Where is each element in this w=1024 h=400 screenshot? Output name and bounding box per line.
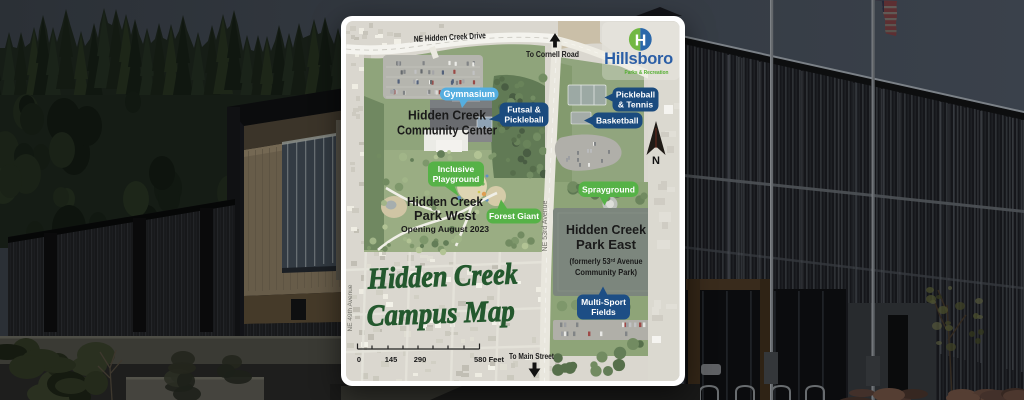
svg-text:580 Feet: 580 Feet (474, 355, 505, 364)
svg-text:NE 49th Avenue: NE 49th Avenue (347, 284, 354, 331)
svg-text:290: 290 (414, 355, 427, 364)
svg-text:(formerly 53rd Avenue: (formerly 53rd Avenue (570, 256, 643, 266)
svg-text:Fields: Fields (591, 307, 616, 317)
svg-text:Hillsboro: Hillsboro (604, 50, 673, 68)
svg-text:Park East: Park East (576, 238, 637, 252)
svg-text:Pickleball: Pickleball (616, 89, 655, 99)
svg-text:Campus Map: Campus Map (366, 294, 515, 332)
svg-text:N: N (652, 155, 660, 167)
svg-text:Park West: Park West (414, 209, 477, 223)
svg-text:Hidden Creek: Hidden Creek (407, 195, 483, 209)
svg-text:To Cornell Road: To Cornell Road (526, 50, 579, 59)
svg-text:Forest Giant: Forest Giant (489, 211, 539, 221)
svg-text:0: 0 (357, 355, 361, 364)
svg-text:Community Center: Community Center (397, 123, 497, 138)
svg-text:Hidden Creek: Hidden Creek (366, 257, 518, 295)
svg-text:To Main Street: To Main Street (509, 352, 554, 361)
svg-text:Inclusive: Inclusive (438, 164, 475, 174)
svg-text:& Tennis: & Tennis (618, 100, 654, 110)
svg-text:H: H (635, 32, 647, 49)
svg-text:Hidden Creek: Hidden Creek (408, 108, 487, 123)
svg-text:Sprayground: Sprayground (582, 184, 635, 194)
svg-text:Pickleball: Pickleball (504, 115, 543, 125)
svg-text:Gymnasium: Gymnasium (443, 89, 495, 99)
svg-text:145: 145 (385, 355, 398, 364)
svg-text:Basketball: Basketball (596, 116, 639, 126)
svg-text:Opening August 2023: Opening August 2023 (401, 224, 489, 234)
svg-text:Community Park): Community Park) (575, 267, 637, 277)
svg-text:Futsal &: Futsal & (507, 104, 541, 114)
svg-text:NE 53rd Avenue: NE 53rd Avenue (542, 200, 549, 251)
svg-text:Parks & Recreation: Parks & Recreation (625, 70, 669, 76)
svg-text:Multi-Sport: Multi-Sport (581, 297, 626, 307)
svg-text:Hidden Creek: Hidden Creek (566, 223, 646, 237)
svg-text:Playground: Playground (433, 174, 480, 184)
